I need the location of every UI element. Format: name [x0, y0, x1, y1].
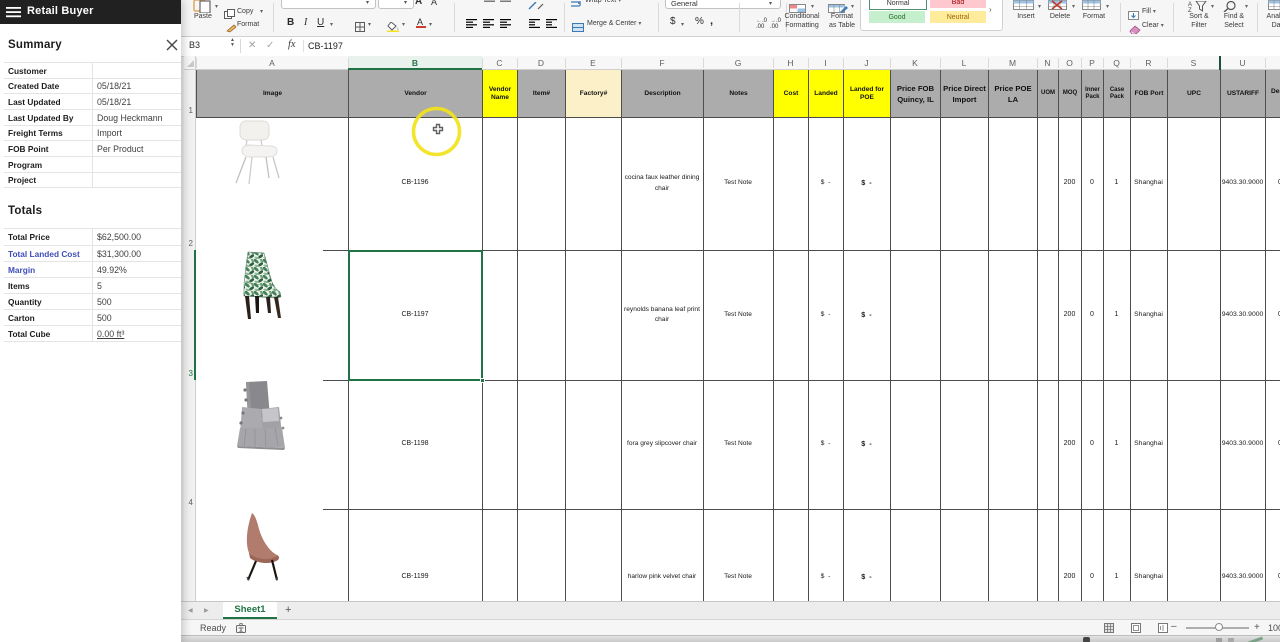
svg-text:Z: Z	[1188, 8, 1192, 12]
